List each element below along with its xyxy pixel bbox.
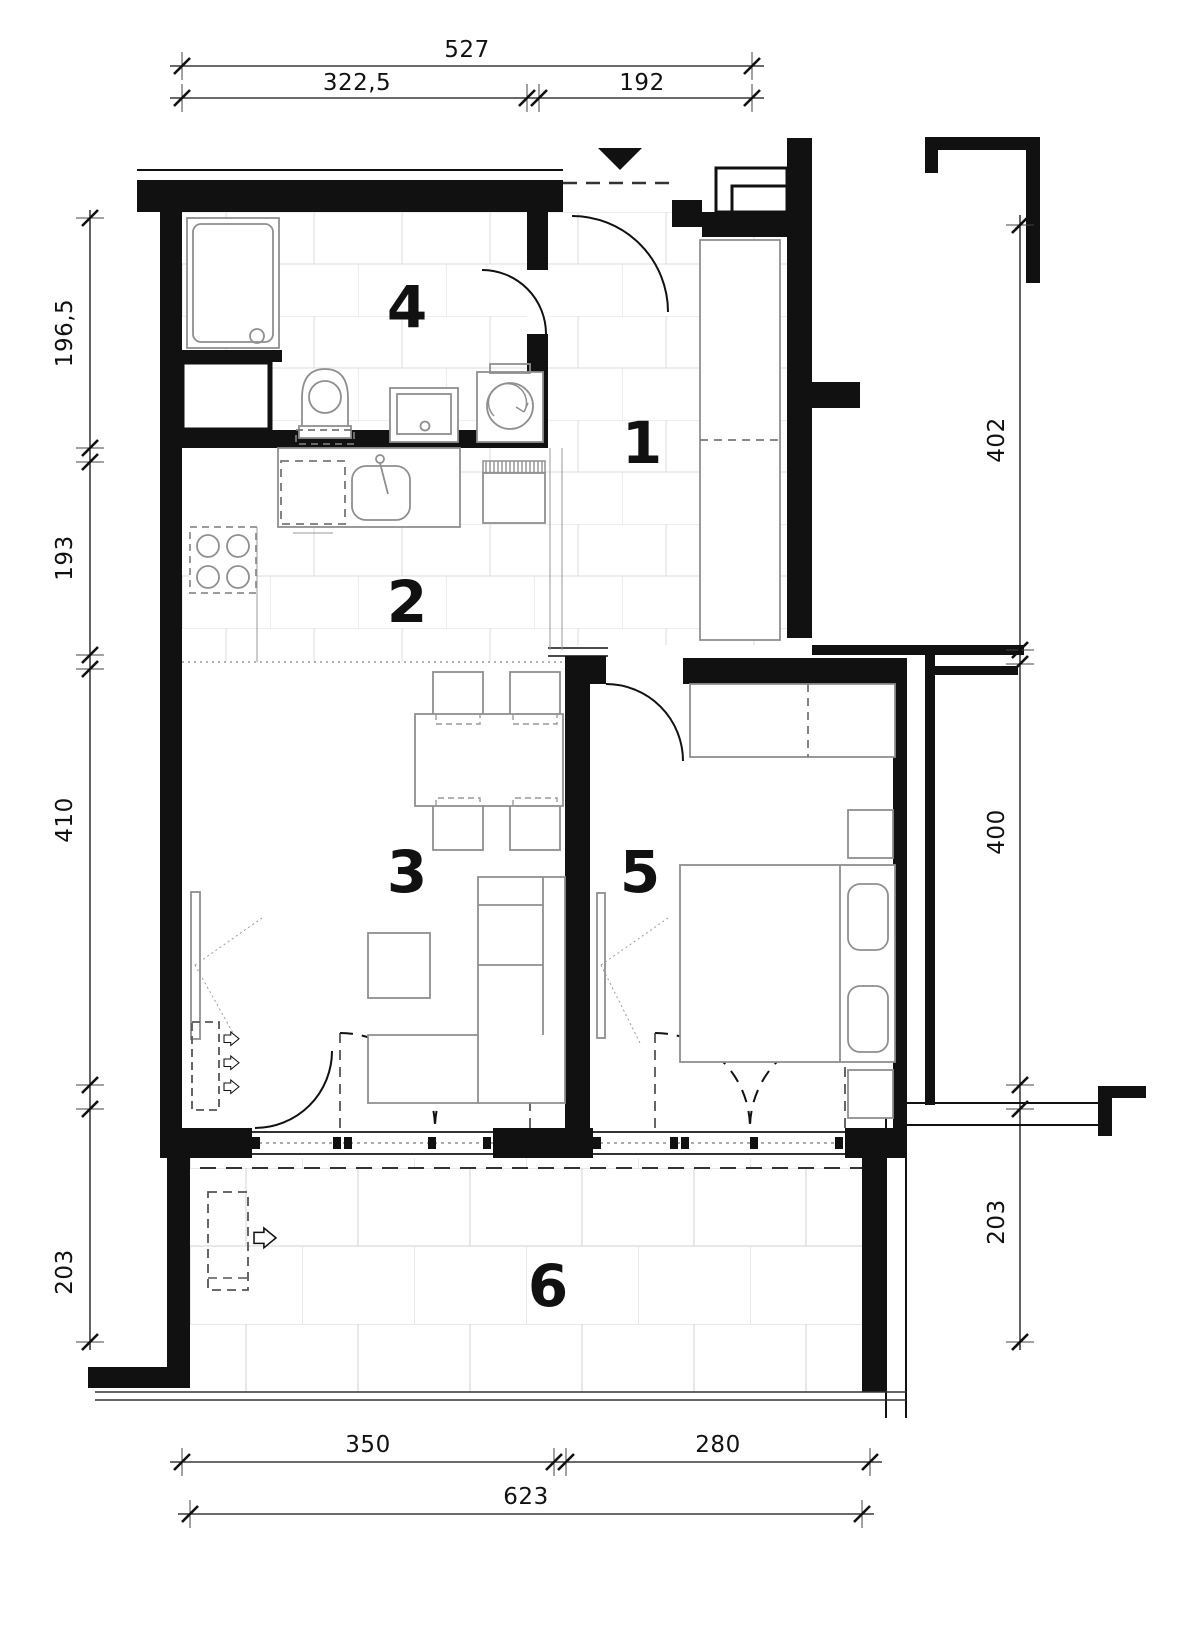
stove xyxy=(190,527,256,593)
wall-living-bedroom-divider xyxy=(565,656,590,1128)
bathroom-sink xyxy=(390,388,458,442)
bedroom-radiator xyxy=(597,893,668,1043)
room-label-kitchen: 2 xyxy=(387,568,427,636)
coffee-table xyxy=(368,933,430,998)
floor-plan-canvas: 1 2 3 4 5 6 527 322,5 192 196,5 193 410 … xyxy=(0,0,1192,1636)
nightstand xyxy=(848,1070,893,1118)
balcony-bottom-slab-lines xyxy=(95,1392,906,1400)
counter-underlay xyxy=(182,448,278,527)
dim-bottom-seg2: 280 xyxy=(695,1432,740,1458)
bedroom-door-arc xyxy=(606,684,683,761)
dim-top-total: 527 xyxy=(444,37,489,63)
wall-neighbor-vertical xyxy=(925,655,935,1105)
wall-right-hall xyxy=(787,138,812,638)
wall-neighbor-mid-b xyxy=(925,666,1018,675)
neighbor-slab-lines xyxy=(906,1103,1098,1125)
living-radiator xyxy=(191,892,262,1042)
pillow xyxy=(848,986,888,1052)
dim-bottom-seg1: 350 xyxy=(345,1432,390,1458)
wall-neighbor-top-c xyxy=(925,150,938,173)
dimension-right: 402 400 203 xyxy=(984,215,1034,1350)
floor-plan: 1 2 3 4 5 6 527 322,5 192 196,5 193 410 … xyxy=(0,0,1192,1636)
dim-bottom-total: 623 xyxy=(503,1484,548,1510)
wall-top xyxy=(137,180,563,212)
dim-left-4: 203 xyxy=(52,1249,78,1294)
wall-bath-hall-upper xyxy=(527,212,548,270)
dim-right-3: 203 xyxy=(984,1199,1010,1244)
room-label-bathroom: 4 xyxy=(387,273,427,341)
dimension-bottom: 350 280 623 xyxy=(170,1432,882,1528)
wall-neighbor-balcony-b xyxy=(1098,1086,1146,1098)
washing-machine xyxy=(477,364,543,442)
bedroom-wardrobe xyxy=(690,684,895,757)
pillow xyxy=(848,884,888,950)
room-label-living: 3 xyxy=(387,838,427,906)
bedroom-top-thin-wall xyxy=(548,648,608,656)
entrance-direction-icon xyxy=(598,148,642,170)
balcony-tile-floor xyxy=(190,1158,862,1392)
room-label-hall: 1 xyxy=(622,409,662,477)
dim-left-3: 410 xyxy=(52,797,78,842)
dim-top-seg2: 192 xyxy=(619,70,664,96)
wall-window-stub-center xyxy=(493,1128,593,1158)
room-label-balcony: 6 xyxy=(528,1252,568,1320)
wall-pier xyxy=(812,382,860,408)
airflow-arrow-icon xyxy=(224,1032,239,1094)
dim-left-2: 193 xyxy=(52,535,78,580)
living-room-furniture xyxy=(191,672,565,1110)
wall-window-stub-left xyxy=(160,1128,252,1158)
shower xyxy=(187,218,279,348)
toilet xyxy=(296,369,354,444)
dimension-left: 196,5 193 410 203 xyxy=(52,210,104,1350)
wall-balcony-step xyxy=(88,1367,190,1388)
living-balcony-door-arc xyxy=(255,1051,332,1128)
wall-left xyxy=(160,212,182,1128)
wall-balcony-left xyxy=(167,1158,190,1367)
wall-entrance-step xyxy=(672,200,702,227)
dimension-ticks xyxy=(174,58,760,106)
dim-top-seg1: 322,5 xyxy=(323,70,391,96)
dim-right-2: 400 xyxy=(984,809,1010,854)
hall-wardrobe xyxy=(700,240,780,640)
room-label-bedroom: 5 xyxy=(620,838,660,906)
wall-neighbor-top-b xyxy=(1026,150,1040,283)
dim-right-1: 402 xyxy=(984,417,1010,462)
dim-left-1: 196,5 xyxy=(52,299,78,367)
wall-neighbor-mid-a xyxy=(812,645,1024,655)
duct-shaft xyxy=(182,362,270,430)
wall-bedroom-top xyxy=(683,658,895,684)
dimension-top: 527 322,5 192 xyxy=(170,37,764,112)
wall-neighbor-top-a xyxy=(925,137,1040,150)
bed xyxy=(680,865,895,1062)
dining-table xyxy=(415,714,563,806)
wall-window-stub-right xyxy=(845,1128,907,1158)
entry-step-outline-2 xyxy=(732,186,787,212)
wall-balcony-right xyxy=(862,1158,886,1392)
hall-furniture xyxy=(700,240,780,640)
entry-step-outline-1 xyxy=(716,168,787,212)
kitchen-radiator xyxy=(483,461,545,523)
nightstand xyxy=(848,810,893,858)
